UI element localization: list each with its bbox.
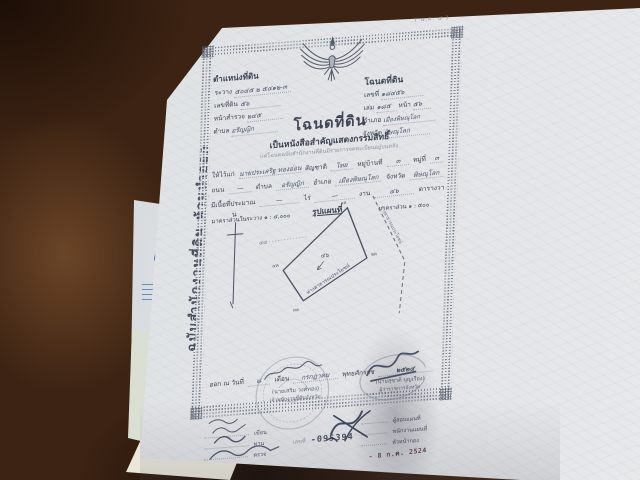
- owner-province-value: พิษณุโลก: [409, 169, 442, 181]
- road-label-bottom: ทางสาธารณประโยชน์: [305, 262, 351, 296]
- corner-1: ๑ค: [340, 201, 346, 206]
- corner-2: ๒ค: [371, 252, 377, 257]
- rawang-value: ๕๐๔๕ ๒ ๕๔๑๒-๓: [234, 81, 290, 98]
- road-value: —: [228, 184, 251, 195]
- moo-value: ๓: [430, 154, 443, 163]
- village-label: หมู่บ้านที่: [357, 157, 383, 169]
- given-label: ให้ไว้แก่: [212, 169, 235, 181]
- parcel-no-label: เลขที่ดิน: [214, 100, 238, 110]
- serial-label: เลขที่: [293, 439, 306, 446]
- nationality-label: สัญชาติ: [305, 162, 327, 174]
- north-label: น: [232, 209, 237, 218]
- road-label-dashed: ทางสาธารณประโยชน์: [379, 205, 405, 246]
- border-corner-tr: [451, 26, 463, 39]
- border-corner-tl: [202, 45, 214, 58]
- owner-tambon-label: ตำบล: [256, 181, 272, 192]
- deed-no-label: เลขที่: [364, 90, 379, 99]
- border-corner-br: [440, 388, 452, 401]
- chanote-document: ( น.ส. ๔ ) ตำแหน่งที่ดิน ระวาง: [190, 28, 463, 472]
- owner-amphoe-value: เมืองพิษณุโลก: [335, 173, 382, 186]
- owner-amphoe-label: อำเภอ: [313, 176, 331, 187]
- neighbor-parcel-label: ๔๔: [259, 240, 268, 247]
- owner-tambon-value: อรัญญิก: [276, 179, 309, 191]
- owner-province-label: จังหวัด: [386, 170, 406, 181]
- nationality-value: ไทย: [331, 161, 353, 171]
- photo-of-land-deed: ฉบับสำนักงานที่ดิน ห้ามนำออก ( น.ส. ๔ ): [0, 0, 640, 480]
- position-block-title: ตำแหน่งที่ดิน: [213, 69, 259, 86]
- corner-4: ๔ค: [272, 263, 279, 269]
- corner-3: ๓ค: [293, 308, 299, 313]
- rawang-label: ระวาง: [214, 87, 232, 96]
- garuda-emblem-icon: [293, 29, 371, 95]
- owner-name: นายประเสริฐ ทองอ่อน: [239, 165, 301, 180]
- road-label: ถนน: [211, 185, 224, 196]
- moo-label: หมู่ที่: [413, 154, 426, 165]
- village-value: ๓: [386, 157, 408, 167]
- parcel-area-label: ๔๖: [321, 252, 330, 260]
